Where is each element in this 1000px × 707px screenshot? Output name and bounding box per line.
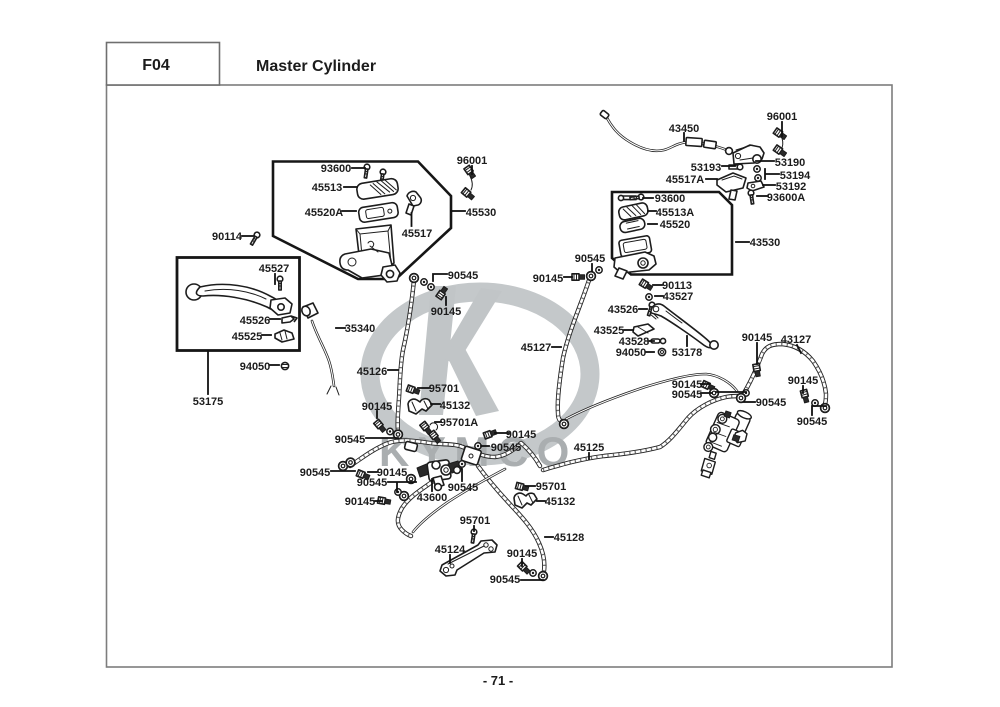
svg-text:90545: 90545 [490,574,521,586]
svg-text:45125: 45125 [574,442,605,454]
svg-text:90545: 90545 [756,397,787,409]
svg-text:90145: 90145 [506,429,537,441]
svg-text:90145: 90145 [742,332,773,344]
svg-text:95701: 95701 [429,383,460,395]
svg-text:90145: 90145 [345,496,376,508]
svg-text:45520A: 45520A [305,207,344,219]
svg-text:45513A: 45513A [656,207,695,219]
svg-text:90145: 90145 [362,401,393,413]
svg-text:90545: 90545 [491,442,522,454]
svg-text:93600: 93600 [655,193,686,205]
svg-text:Master Cylinder: Master Cylinder [256,58,376,75]
svg-text:93600A: 93600A [767,192,806,204]
svg-text:90545: 90545 [797,416,828,428]
svg-text:45127: 45127 [521,342,552,354]
svg-text:45530: 45530 [466,207,497,219]
svg-text:53193: 53193 [691,162,722,174]
svg-text:93600: 93600 [321,163,352,175]
svg-text:95701: 95701 [460,515,491,527]
svg-text:90145: 90145 [431,306,462,318]
svg-text:43530: 43530 [750,237,781,249]
svg-text:45126: 45126 [357,366,388,378]
svg-text:45517A: 45517A [666,174,705,186]
svg-text:45128: 45128 [554,532,585,544]
svg-text:95701A: 95701A [440,417,479,429]
svg-text:90545: 90545 [357,477,388,489]
svg-text:90545: 90545 [448,482,479,494]
svg-text:53178: 53178 [672,347,703,359]
svg-text:95701: 95701 [536,481,567,493]
svg-text:45520: 45520 [660,219,691,231]
svg-text:45132: 45132 [545,496,576,508]
svg-text:90545: 90545 [575,253,606,265]
svg-text:45517: 45517 [402,228,433,240]
svg-text:53175: 53175 [193,396,224,408]
svg-text:43526: 43526 [608,304,639,316]
svg-text:F04: F04 [142,57,170,74]
svg-text:90545: 90545 [448,270,479,282]
svg-text:43600: 43600 [417,492,448,504]
svg-text:94050: 94050 [616,347,647,359]
svg-text:- 71 -: - 71 - [483,673,513,688]
svg-text:45513: 45513 [312,182,343,194]
svg-text:90114: 90114 [212,231,243,243]
svg-text:45132: 45132 [440,400,471,412]
svg-text:45526: 45526 [240,315,271,327]
svg-text:94050: 94050 [240,361,271,373]
svg-text:96001: 96001 [767,111,798,123]
svg-text:90145: 90145 [533,273,564,285]
svg-text:90145: 90145 [507,548,538,560]
svg-text:90145: 90145 [788,375,819,387]
svg-text:90545: 90545 [672,389,703,401]
svg-text:45124: 45124 [435,544,466,556]
svg-text:45525: 45525 [232,331,263,343]
svg-text:90545: 90545 [335,434,366,446]
svg-text:43527: 43527 [663,291,694,303]
svg-text:45527: 45527 [259,263,290,275]
svg-text:96001: 96001 [457,155,488,167]
svg-text:43450: 43450 [669,123,700,135]
svg-text:53190: 53190 [775,157,806,169]
svg-text:35340: 35340 [345,323,376,335]
svg-text:43127: 43127 [781,334,812,346]
svg-text:90545: 90545 [300,467,331,479]
